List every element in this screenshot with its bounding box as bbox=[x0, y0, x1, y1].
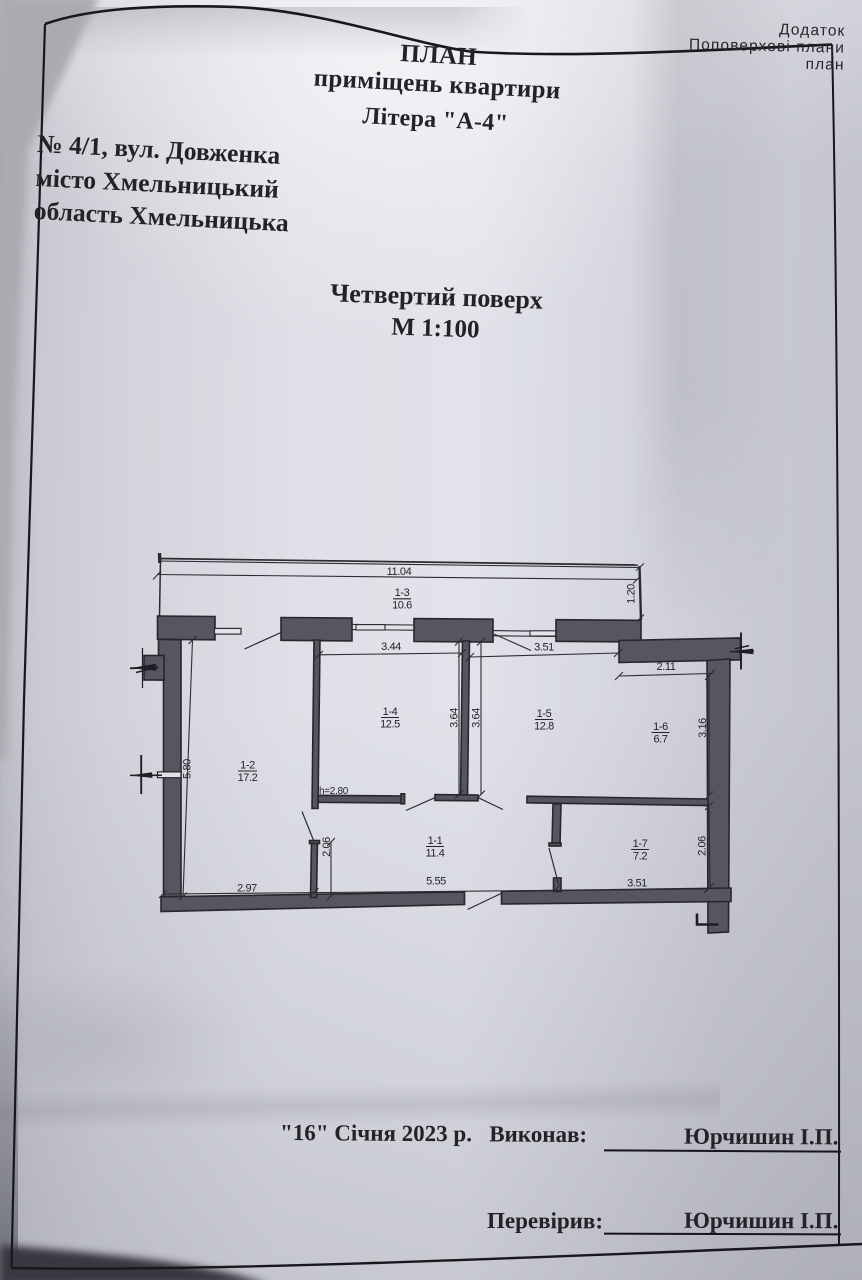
svg-text:1-6: 1-6 bbox=[653, 721, 668, 733]
svg-text:6.7: 6.7 bbox=[653, 734, 667, 746]
svg-text:2.06: 2.06 bbox=[697, 836, 709, 856]
svg-text:2.06: 2.06 bbox=[321, 837, 333, 857]
svg-text:11.04: 11.04 bbox=[387, 566, 412, 578]
svg-text:17.2: 17.2 bbox=[238, 772, 258, 784]
svg-text:2.11: 2.11 bbox=[657, 661, 676, 673]
svg-text:3.51: 3.51 bbox=[534, 642, 554, 654]
svg-text:1-7: 1-7 bbox=[633, 838, 648, 850]
svg-text:3.64: 3.64 bbox=[449, 708, 461, 728]
svg-text:11.4: 11.4 bbox=[426, 848, 445, 860]
svg-text:1-1: 1-1 bbox=[428, 835, 443, 847]
svg-text:5.55: 5.55 bbox=[426, 876, 446, 888]
svg-text:1-5: 1-5 bbox=[537, 708, 552, 720]
svg-text:1-3: 1-3 bbox=[395, 587, 410, 599]
svg-text:7.2: 7.2 bbox=[633, 851, 647, 863]
svg-text:3.16: 3.16 bbox=[697, 718, 709, 738]
svg-text:10.6: 10.6 bbox=[392, 600, 412, 612]
svg-text:2.97: 2.97 bbox=[237, 883, 257, 895]
svg-text:12.8: 12.8 bbox=[534, 721, 554, 733]
svg-text:1.20: 1.20 bbox=[626, 584, 638, 604]
svg-text:1-4: 1-4 bbox=[383, 706, 398, 718]
svg-text:3.44: 3.44 bbox=[381, 641, 401, 653]
svg-text:h=2.80: h=2.80 bbox=[319, 786, 349, 797]
svg-text:3.64: 3.64 bbox=[471, 708, 483, 728]
svg-text:3.51: 3.51 bbox=[627, 878, 647, 890]
svg-text:1-2: 1-2 bbox=[240, 760, 255, 772]
svg-text:12.5: 12.5 bbox=[380, 719, 400, 731]
svg-text:5.80: 5.80 bbox=[182, 759, 194, 779]
